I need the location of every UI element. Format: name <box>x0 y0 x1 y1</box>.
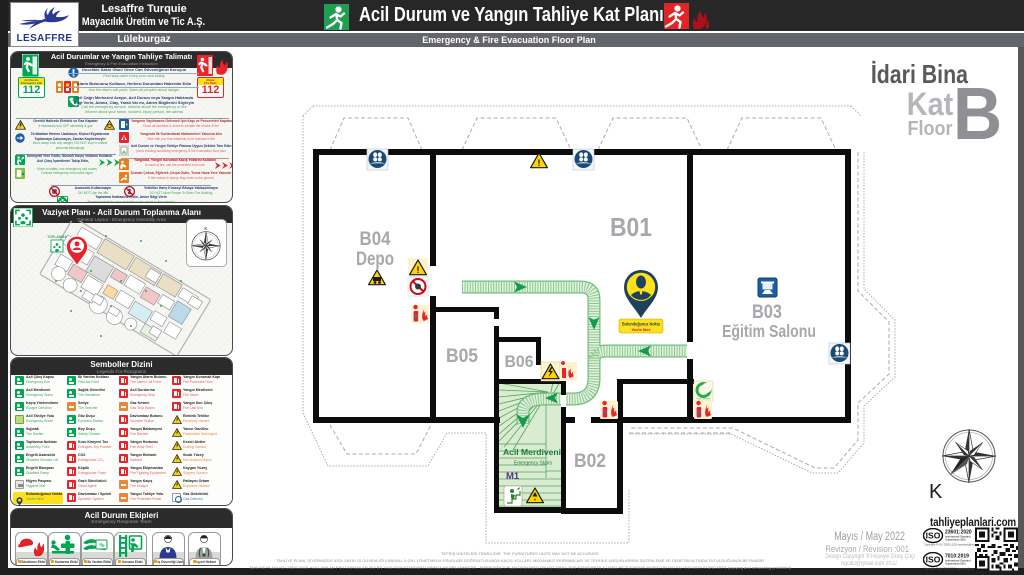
svg-text:B02: B02 <box>574 451 606 472</box>
svg-text:B03: B03 <box>752 302 782 323</box>
svg-text:Emergency Stairs: Emergency Stairs <box>514 461 552 467</box>
svg-text:!: ! <box>538 158 541 168</box>
svg-text:Eğitim Salonu: Eğitim Salonu <box>722 321 816 341</box>
svg-text:Organization (BS): Organization (BS) <box>945 562 966 566</box>
svg-text:Bulunduğunuz Nokta: Bulunduğunuz Nokta <box>622 322 660 327</box>
svg-text:B04: B04 <box>360 229 391 250</box>
svg-text:B06: B06 <box>505 352 534 371</box>
svg-text:ISO: ISO <box>926 531 941 541</box>
svg-text:Copyright ® ISO 7010:2019 stan: Copyright ® ISO 7010:2019 standarts@iso.… <box>924 567 975 571</box>
svg-text:Acil Servis: Acil Servis <box>696 397 711 401</box>
svg-text:M1: M1 <box>506 471 520 482</box>
svg-text:Copyright ® ISO 23601:2020 sta: Copyright ® ISO 23601:2020 standarts@iso… <box>924 543 975 547</box>
svg-text:Organization (BS): Organization (BS) <box>945 538 966 542</box>
svg-text:B05: B05 <box>446 346 478 367</box>
svg-text:Acil Merdiveni: Acil Merdiveni <box>503 447 561 457</box>
svg-text:You're Here: You're Here <box>632 327 652 332</box>
svg-text:B01: B01 <box>610 212 652 242</box>
svg-text:ISO: ISO <box>926 555 941 565</box>
svg-text:!: ! <box>417 265 420 275</box>
svg-text:Depo: Depo <box>356 249 394 270</box>
